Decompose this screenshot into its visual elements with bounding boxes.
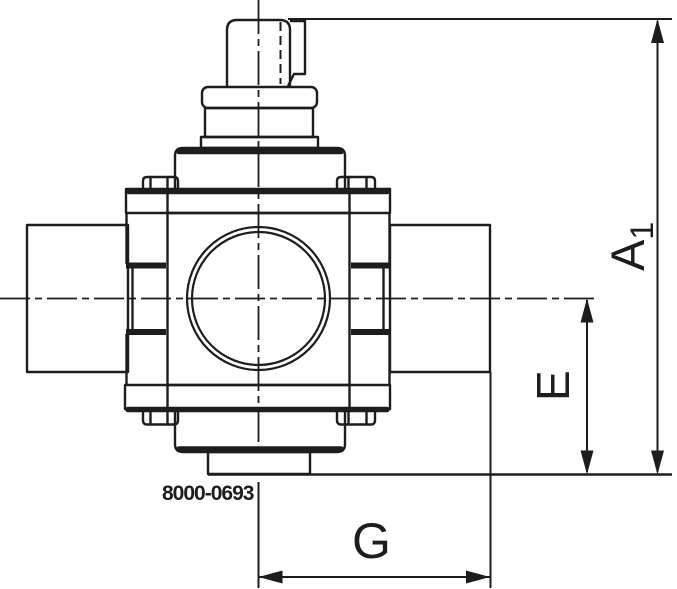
flange-bolt-top-left	[143, 177, 178, 189]
stem-handle	[227, 20, 305, 88]
arrow-a1-down	[651, 451, 664, 475]
arrow-g-right	[466, 571, 490, 584]
arrow-e-up	[581, 299, 594, 323]
pedestal	[208, 452, 310, 474]
dimension-lines	[208, 19, 672, 588]
arrow-e-down	[581, 451, 594, 475]
dimension-label-g: G	[352, 513, 391, 569]
bottom-flange	[125, 385, 390, 425]
bolt-head-outline	[143, 177, 178, 189]
dimension-label-e: E	[527, 370, 579, 401]
bottom-cap-outline	[175, 409, 345, 452]
arrow-a1-up	[651, 19, 664, 43]
bolt-head-outline	[337, 177, 375, 189]
dimension-label-a1: A1	[601, 222, 660, 271]
flange-bolt-top-right	[337, 177, 375, 189]
packing-nut	[202, 87, 317, 108]
bonnet-neck	[201, 137, 318, 148]
bonnet-assembly	[175, 87, 345, 189]
valve-technical-drawing: A1 E G 8000-0693	[0, 0, 677, 589]
bottom-cap	[175, 409, 345, 474]
arrow-g-left	[259, 571, 283, 584]
part-number: 8000-0693	[162, 482, 254, 505]
dimension-arrowheads	[259, 19, 665, 584]
